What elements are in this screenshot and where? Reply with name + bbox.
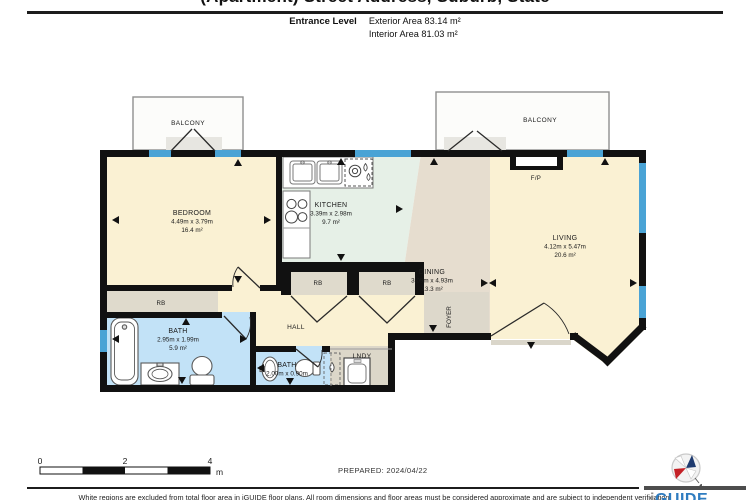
scale-tick-0: 0	[38, 456, 43, 466]
room-dims: 2.00m x 0.90m	[266, 371, 308, 378]
room-name: BATH	[277, 362, 296, 369]
scale-tick-4: 4	[208, 456, 213, 466]
clipped-title-text: (Apartment) Street Address, Suburb, Stat…	[0, 0, 750, 7]
laundry-label: LNDY	[353, 353, 372, 360]
room-dims: 4.49m x 3.79m	[171, 219, 213, 226]
room-dims: 3.39m x 2.98m	[310, 211, 352, 218]
water-drop-icon	[367, 174, 370, 181]
room-area: 20.6 m²	[554, 252, 575, 259]
robe-label: RB	[382, 280, 391, 287]
balcony-left-label: BALCONY	[171, 120, 205, 127]
exterior-area: Exterior Area 83.14 m²	[369, 15, 461, 28]
floorplan-drawing: BALCONY BALCONY	[0, 0, 750, 500]
interior-area: Interior Area 81.03 m²	[369, 28, 461, 41]
prepared-date: PREPARED: 2024/04/22	[338, 466, 427, 475]
foyer-floor	[424, 292, 489, 339]
toilet	[192, 357, 212, 376]
window	[639, 163, 646, 233]
header-divider	[27, 11, 723, 14]
room-name: LIVING	[553, 235, 578, 242]
room-area: 9.7 m²	[322, 219, 340, 226]
living-floor	[490, 153, 646, 366]
room-name: KITCHEN	[315, 202, 348, 209]
scale-bar: 0 2 4 m	[38, 456, 223, 477]
foyer-label: FOYER	[446, 306, 453, 328]
room-area: 13.3 m²	[421, 286, 442, 293]
disclaimer-text: White regions are excluded from total fl…	[27, 493, 723, 500]
robe-label: RB	[156, 300, 165, 307]
room-name: BEDROOM	[173, 210, 211, 217]
room-dims: 3.09m x 4.93m	[411, 278, 453, 285]
balcony-left: BALCONY	[133, 97, 243, 150]
footer-divider	[27, 487, 639, 489]
scale-tick-2: 2	[123, 456, 128, 466]
clipped-title: (Apartment) Street Address, Suburb, Stat…	[0, 0, 750, 10]
fireplace-label: F/P	[531, 175, 541, 182]
plan-header: Entrance Level Exterior Area 83.14 m² In…	[0, 15, 750, 40]
area-summary: Exterior Area 83.14 m² Interior Area 81.…	[369, 15, 461, 40]
room-name: BATH	[168, 328, 187, 335]
floorplan-page: (Apartment) Street Address, Suburb, Stat…	[0, 0, 750, 500]
window	[639, 286, 646, 318]
brand-logo-guide: GUIDE	[655, 491, 708, 500]
water-drop-icon	[364, 164, 367, 172]
hall-label: HALL	[287, 324, 305, 331]
room-dims: 4.12m x 5.47m	[544, 244, 586, 251]
room-name: DINING	[419, 269, 445, 276]
window	[100, 330, 107, 352]
window	[355, 150, 411, 157]
window	[215, 150, 241, 157]
room-area: 16.4 m²	[181, 227, 202, 234]
logo-bar	[644, 486, 746, 490]
room-dims: 2.95m x 1.99m	[157, 337, 199, 344]
brand-logo: iGUIDE	[650, 491, 708, 500]
balcony-right: BALCONY	[436, 92, 609, 150]
window	[567, 150, 603, 157]
robe-label: RB	[313, 280, 322, 287]
window	[149, 150, 171, 157]
balcony-right-threshold	[444, 137, 506, 150]
level-label: Entrance Level	[289, 15, 357, 27]
room-area: 5.9 m²	[169, 345, 187, 352]
balcony-right-label: BALCONY	[523, 117, 557, 124]
scale-unit: m	[216, 467, 223, 477]
